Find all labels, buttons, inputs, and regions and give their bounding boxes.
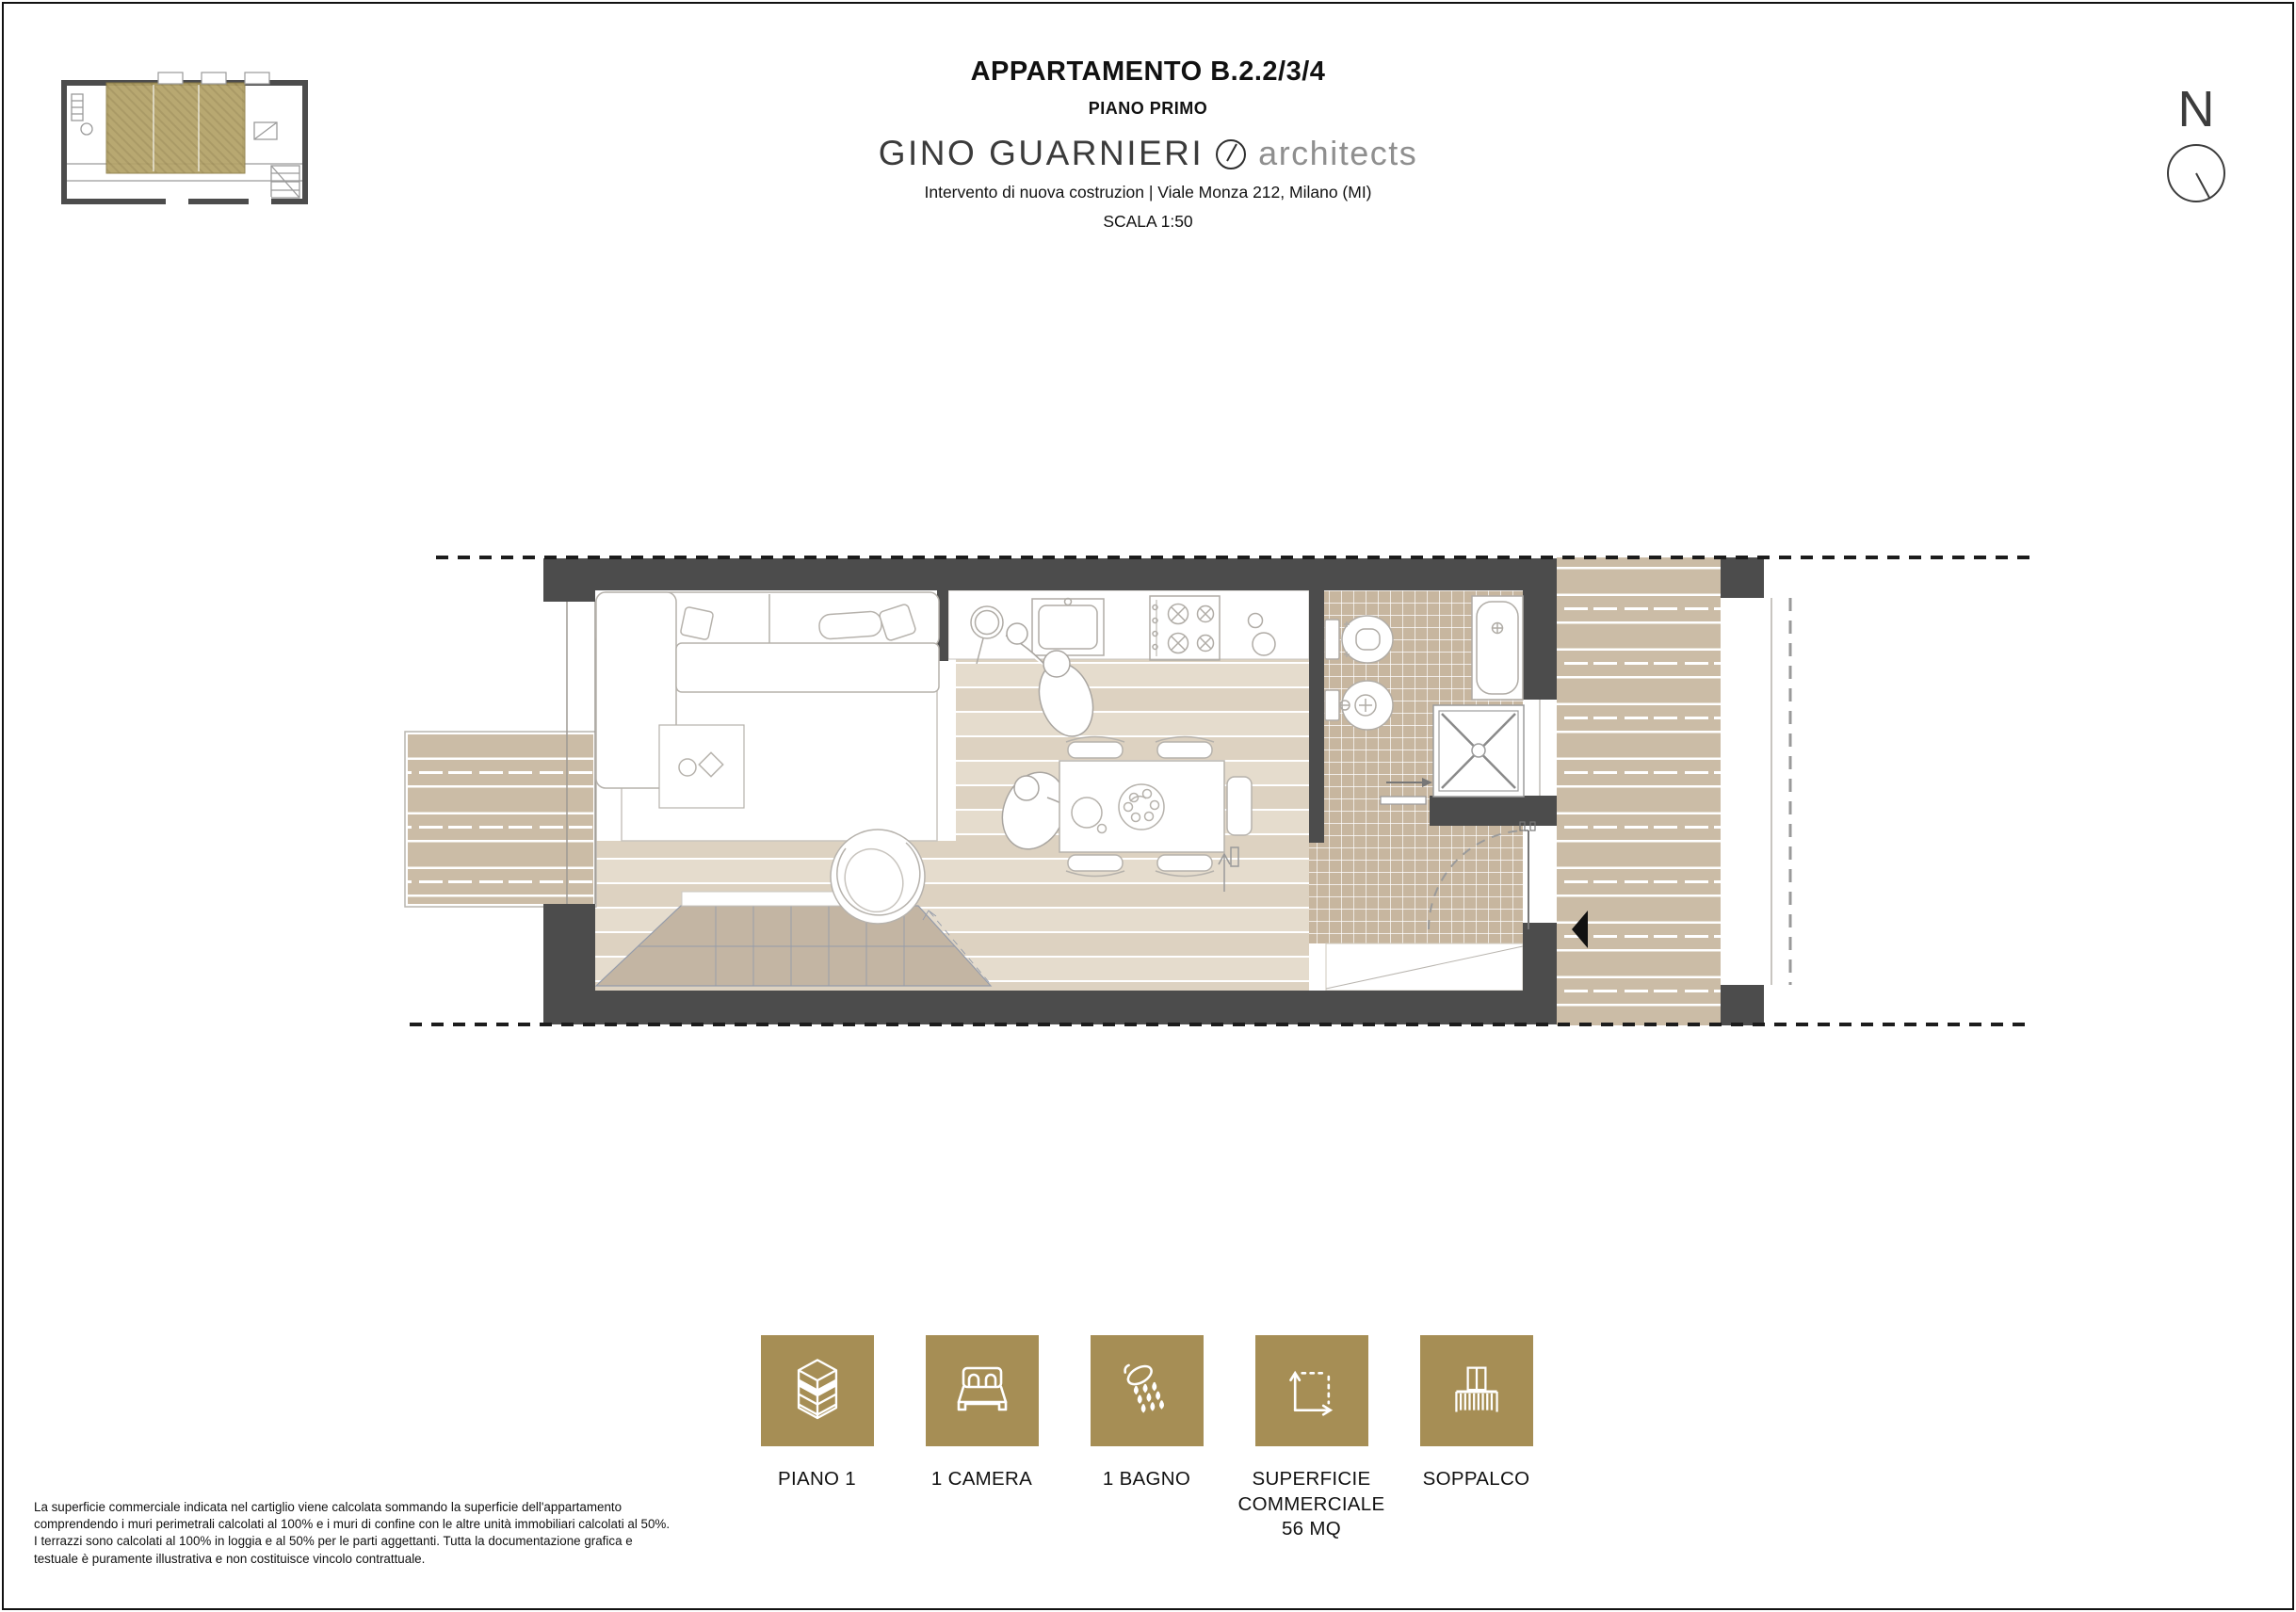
badge-piano: PIANO 1 bbox=[735, 1335, 899, 1542]
badge-label: SOPPALCO bbox=[1423, 1467, 1530, 1492]
toilet bbox=[1325, 616, 1393, 663]
bed-icon bbox=[952, 1361, 1012, 1421]
area-dimension-icon bbox=[1284, 1362, 1340, 1419]
sheet-subtitle: PIANO PRIMO bbox=[0, 99, 2296, 119]
studio-logo: GINO GUARNIERI architects bbox=[0, 134, 2296, 173]
badge-label: SUPERFICIE COMMERCIALE 56 MQ bbox=[1238, 1467, 1385, 1542]
walkway-railing bbox=[1771, 598, 1790, 985]
walkway-pillar-top bbox=[1721, 557, 1764, 598]
badge-superficie: SUPERFICIE COMMERCIALE 56 MQ bbox=[1229, 1335, 1394, 1542]
walkway-deck bbox=[1557, 557, 1721, 1025]
logo-circle-icon bbox=[1213, 136, 1249, 171]
disclaimer-text: La superficie commerciale indicata nel c… bbox=[34, 1499, 670, 1568]
disclaimer-line: La superficie commerciale indicata nel c… bbox=[34, 1499, 670, 1516]
floorplan-sheet: APPARTAMENTO B.2.2/3/4 PIANO PRIMO GINO … bbox=[0, 0, 2296, 1612]
badge-camere: 1 CAMERA bbox=[899, 1335, 1064, 1542]
sink bbox=[1032, 599, 1104, 655]
disclaimer-line: testuale è puramente illustrativa e non … bbox=[34, 1551, 670, 1568]
north-label: N bbox=[2178, 81, 2215, 137]
project-line: Intervento di nuova costruzion | Viale M… bbox=[0, 183, 2296, 202]
logo-name: GINO GUARNIERI bbox=[879, 134, 1204, 173]
floor-stack-icon bbox=[790, 1354, 845, 1427]
hallway-tiles bbox=[1309, 843, 1326, 943]
balcony-icon bbox=[1448, 1362, 1505, 1419]
platter bbox=[1119, 784, 1164, 830]
summary-badges: PIANO 1 1 CAMERA bbox=[735, 1335, 1559, 1542]
badge-soppalco: SOPPALCO bbox=[1394, 1335, 1559, 1542]
north-icon: N bbox=[2149, 79, 2243, 216]
badge-label: 1 BAGNO bbox=[1103, 1467, 1190, 1492]
title-block: APPARTAMENTO B.2.2/3/4 PIANO PRIMO GINO … bbox=[0, 56, 2296, 232]
shower bbox=[1433, 705, 1524, 797]
sheet-title: APPARTAMENTO B.2.2/3/4 bbox=[0, 56, 2296, 88]
logo-suffix: architects bbox=[1258, 134, 1417, 173]
loggia-deck bbox=[408, 734, 593, 904]
badge-label: PIANO 1 bbox=[778, 1467, 856, 1492]
shower-icon bbox=[1118, 1362, 1176, 1420]
disclaimer-line: comprendendo i muri perimetrali calcolat… bbox=[34, 1516, 670, 1533]
badge-label: 1 CAMERA bbox=[931, 1467, 1032, 1492]
floor-plan-drawing bbox=[264, 541, 2110, 1040]
badge-bagni: 1 BAGNO bbox=[1064, 1335, 1229, 1542]
disclaimer-line: I terrazzi sono calcolati al 100% in log… bbox=[34, 1533, 670, 1550]
scale-line: SCALA 1:50 bbox=[0, 212, 2296, 232]
north-indicator: N bbox=[2149, 79, 2243, 216]
bathtub bbox=[1472, 596, 1523, 700]
walkway-pillar-bottom bbox=[1721, 985, 1764, 1025]
